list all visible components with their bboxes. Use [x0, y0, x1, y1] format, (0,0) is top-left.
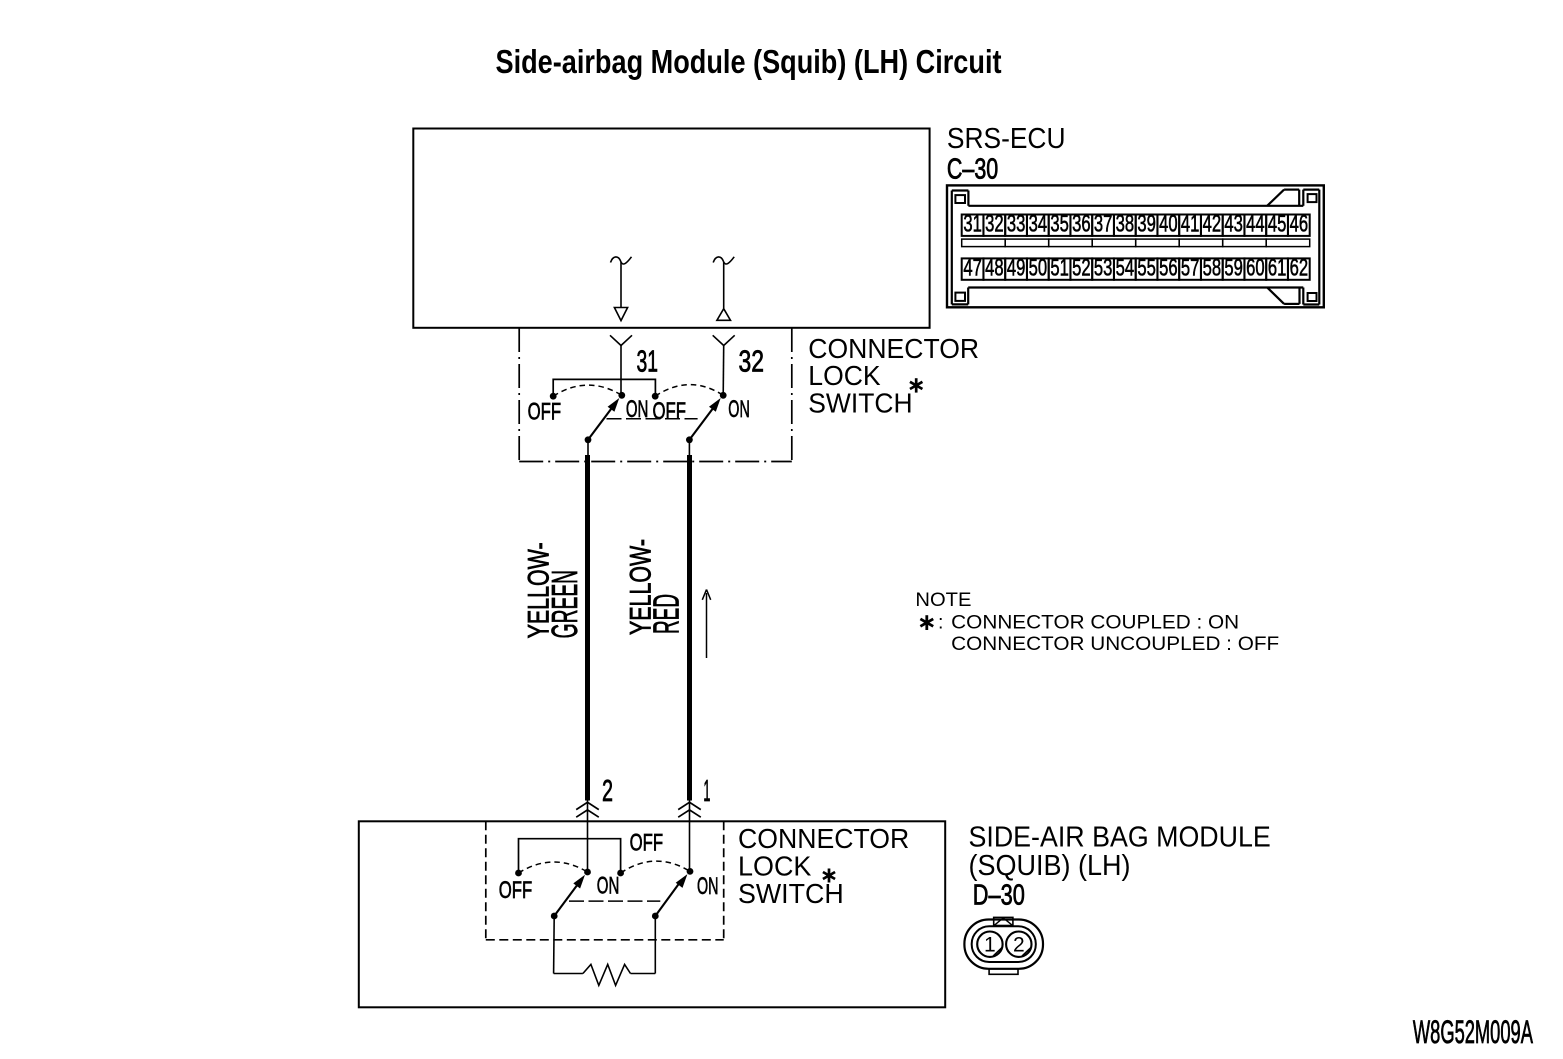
svg-text:ON: ON [597, 872, 620, 899]
svg-text:SRS-ECU: SRS-ECU [947, 123, 1066, 155]
svg-text:D–30: D–30 [973, 879, 1025, 911]
svg-text:(SQUIB) (LH): (SQUIB) (LH) [969, 850, 1131, 882]
svg-text:1: 1 [984, 934, 996, 957]
svg-text:60: 60 [1246, 255, 1265, 282]
svg-text:31: 31 [963, 211, 982, 238]
svg-text:RED: RED [646, 594, 687, 634]
svg-text:56: 56 [1159, 255, 1178, 282]
svg-text::: : [938, 612, 943, 634]
svg-text:34: 34 [1029, 211, 1048, 238]
svg-text:Side-airbag Module (Squib) (LH: Side-airbag Module (Squib) (LH) Circuit [496, 44, 1002, 81]
svg-text:51: 51 [1050, 255, 1069, 282]
svg-text:2: 2 [1013, 934, 1025, 957]
svg-text:LOCK: LOCK [738, 850, 812, 881]
svg-text:SWITCH: SWITCH [808, 387, 912, 418]
svg-text:OFF: OFF [499, 877, 533, 904]
svg-text:45: 45 [1268, 211, 1287, 238]
svg-text:42: 42 [1203, 211, 1222, 238]
svg-text:54: 54 [1116, 255, 1135, 282]
svg-text:48: 48 [985, 255, 1004, 282]
svg-text:33: 33 [1007, 211, 1026, 238]
svg-text:SWITCH: SWITCH [738, 878, 844, 909]
svg-text:39: 39 [1137, 211, 1156, 238]
svg-text:59: 59 [1224, 255, 1243, 282]
svg-text:OFF: OFF [528, 398, 562, 425]
svg-text:31: 31 [637, 344, 659, 379]
svg-text:OFF: OFF [630, 830, 664, 857]
svg-text:C–30: C–30 [947, 153, 998, 185]
svg-text:36: 36 [1072, 211, 1091, 238]
svg-text:ON: ON [728, 396, 750, 423]
svg-text:35: 35 [1050, 211, 1069, 238]
svg-text:49: 49 [1007, 255, 1026, 282]
svg-text:1: 1 [703, 773, 710, 808]
svg-text:CONNECTOR COUPLED : ON: CONNECTOR COUPLED : ON [951, 612, 1239, 634]
svg-text:2: 2 [602, 773, 613, 808]
svg-text:CONNECTOR UNCOUPLED : OFF: CONNECTOR UNCOUPLED : OFF [951, 633, 1279, 655]
svg-text:55: 55 [1137, 255, 1156, 282]
svg-text:43: 43 [1224, 211, 1243, 238]
svg-text:ON: ON [697, 873, 719, 900]
svg-text:50: 50 [1029, 255, 1048, 282]
svg-text:46: 46 [1290, 211, 1309, 238]
svg-text:GREEN: GREEN [544, 570, 585, 639]
svg-text:58: 58 [1203, 255, 1222, 282]
svg-text:NOTE: NOTE [915, 589, 971, 611]
svg-text:32: 32 [985, 211, 1004, 238]
svg-text:38: 38 [1116, 211, 1135, 238]
svg-text:OFF: OFF [653, 398, 687, 425]
svg-text:41: 41 [1181, 211, 1200, 238]
svg-text:61: 61 [1268, 255, 1287, 282]
svg-text:47: 47 [963, 255, 982, 282]
svg-text:W8G52M009A: W8G52M009A [1413, 1014, 1533, 1050]
svg-text:62: 62 [1290, 255, 1309, 282]
svg-text:57: 57 [1181, 255, 1200, 282]
svg-text:32: 32 [739, 344, 765, 379]
svg-text:53: 53 [1094, 255, 1113, 282]
svg-text:SIDE-AIR BAG MODULE: SIDE-AIR BAG MODULE [969, 822, 1271, 854]
svg-text:52: 52 [1072, 255, 1091, 282]
svg-text:44: 44 [1246, 211, 1265, 238]
svg-text:40: 40 [1159, 211, 1178, 238]
svg-text:37: 37 [1094, 211, 1113, 238]
